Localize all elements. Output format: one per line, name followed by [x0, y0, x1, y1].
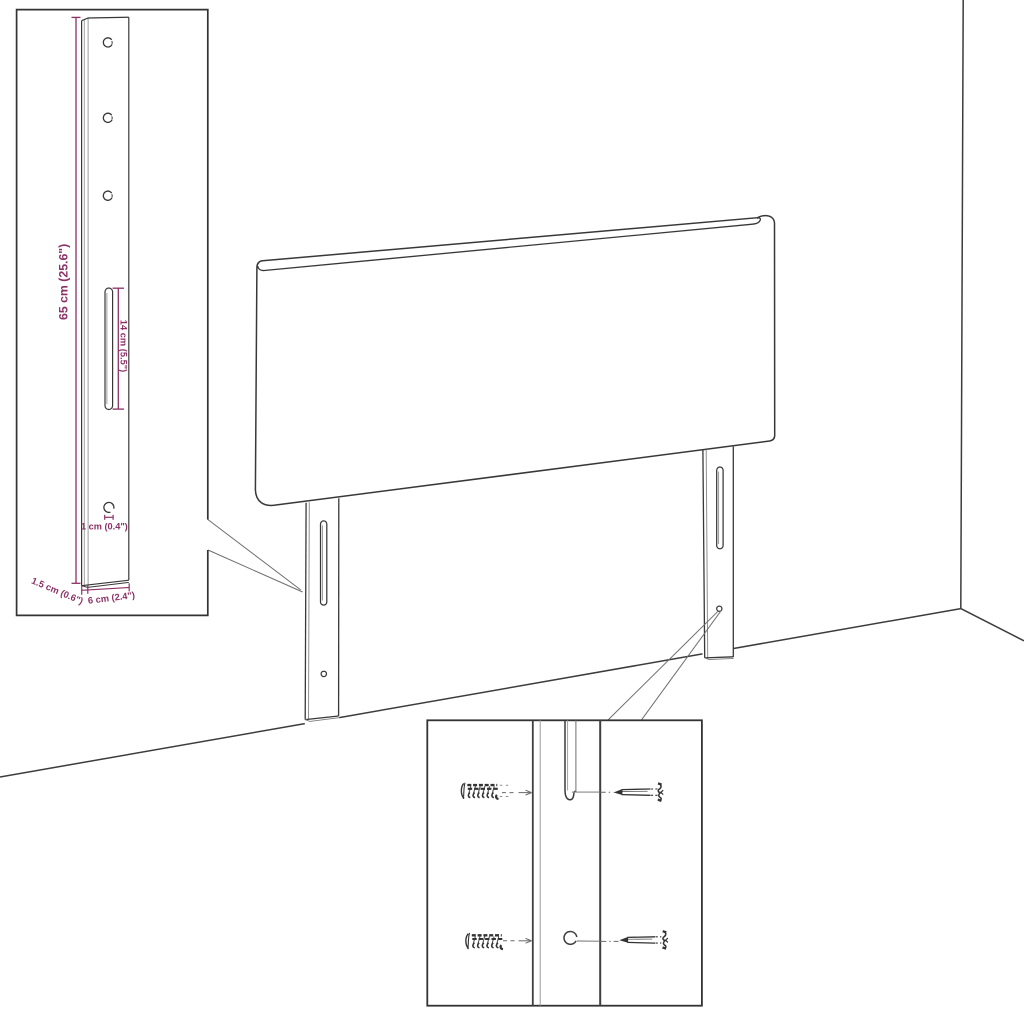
- svg-text:65 cm (25.6"): 65 cm (25.6"): [57, 244, 71, 320]
- svg-text:14 cm (5.5"): 14 cm (5.5"): [119, 320, 129, 372]
- svg-text:6 cm (2.4"): 6 cm (2.4"): [87, 590, 135, 606]
- svg-text:1 cm (0.4"): 1 cm (0.4"): [81, 522, 128, 532]
